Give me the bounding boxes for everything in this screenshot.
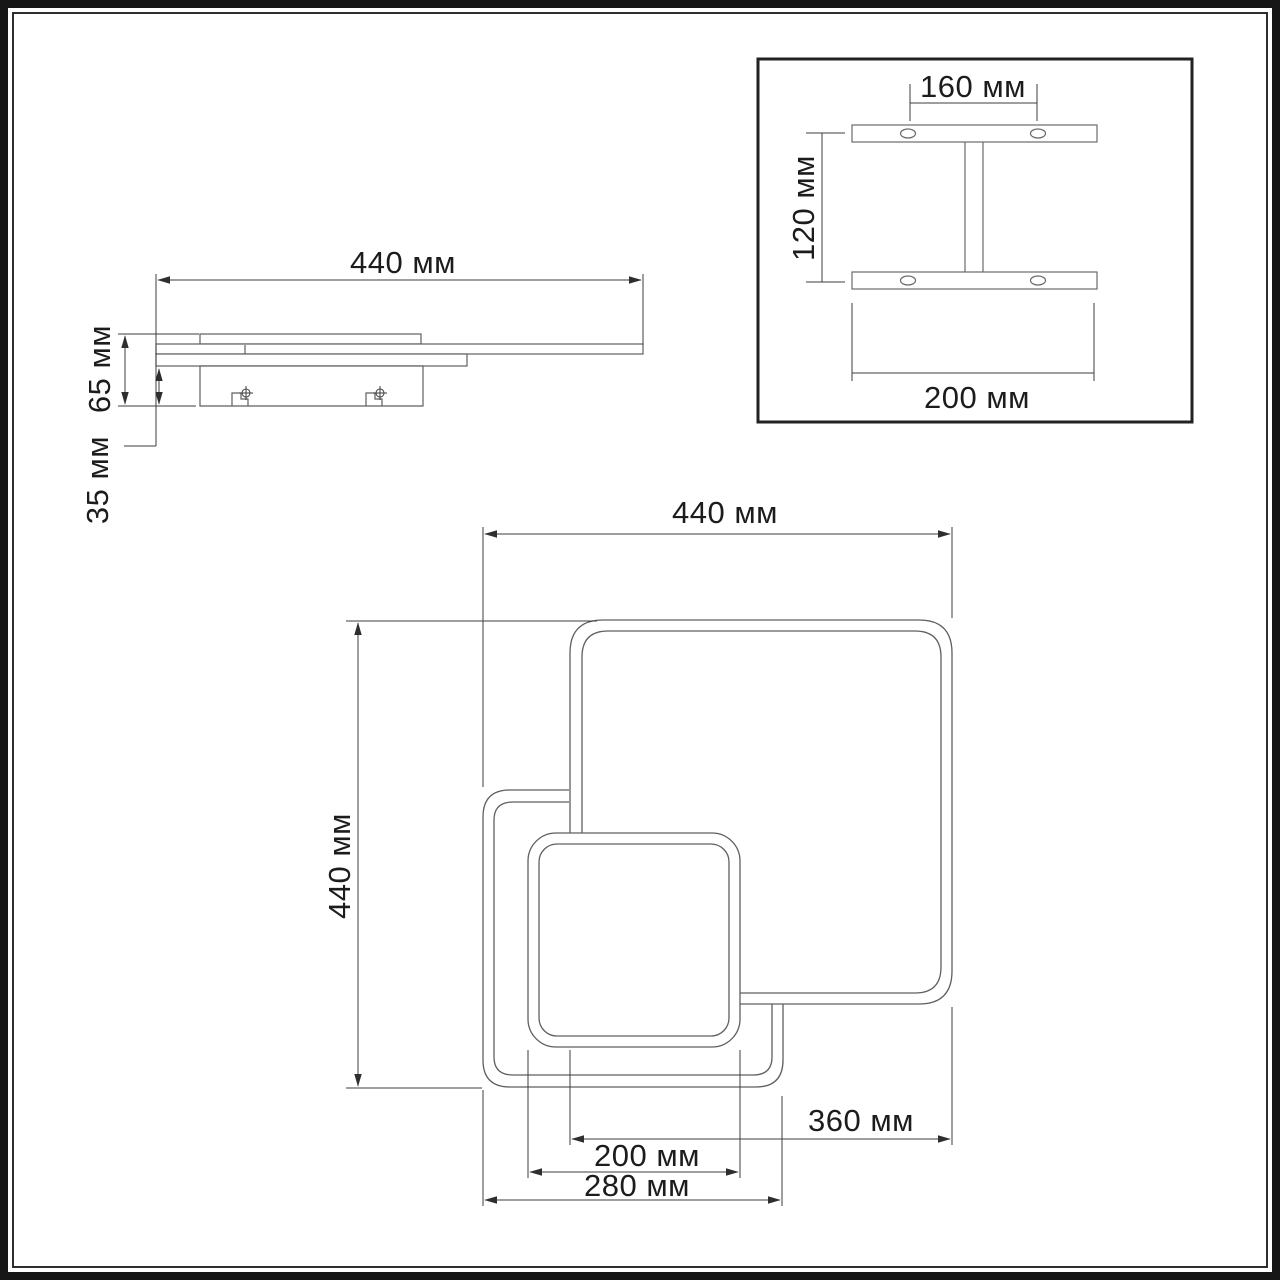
plan-medium-square-label: 280 мм bbox=[584, 1168, 690, 1203]
bracket-detail-border bbox=[758, 59, 1192, 422]
bracket-detail: 160 мм 120 мм 200 мм bbox=[758, 59, 1192, 422]
side-view bbox=[156, 334, 643, 406]
side-top-frame-plate bbox=[200, 334, 421, 344]
plan-overall-height-label: 440 мм bbox=[322, 813, 357, 919]
side-total-height-label: 65 мм bbox=[82, 325, 117, 413]
plan-view bbox=[483, 620, 952, 1087]
plan-overall-width-label: 440 мм bbox=[672, 495, 778, 530]
side-width-label: 440 мм bbox=[350, 245, 456, 280]
bracket-holes-spacing-label: 160 мм bbox=[920, 69, 1026, 104]
side-canopy-box bbox=[200, 366, 423, 406]
bracket-width-label: 200 мм bbox=[924, 380, 1030, 415]
technical-drawing-canvas: 440 мм 65 мм 35 мм bbox=[0, 0, 1280, 1280]
plan-small-square bbox=[528, 833, 740, 1047]
side-canopy-height-label: 35 мм bbox=[80, 436, 115, 524]
side-large-frame-plate bbox=[156, 344, 643, 354]
side-medium-frame-plate bbox=[156, 354, 467, 366]
plan-small-square-outer bbox=[528, 833, 740, 1047]
drawing-page: 440 мм 65 мм 35 мм bbox=[0, 0, 1280, 1280]
plan-large-square-label: 360 мм bbox=[808, 1103, 914, 1138]
bracket-height-label: 120 мм bbox=[786, 155, 821, 261]
